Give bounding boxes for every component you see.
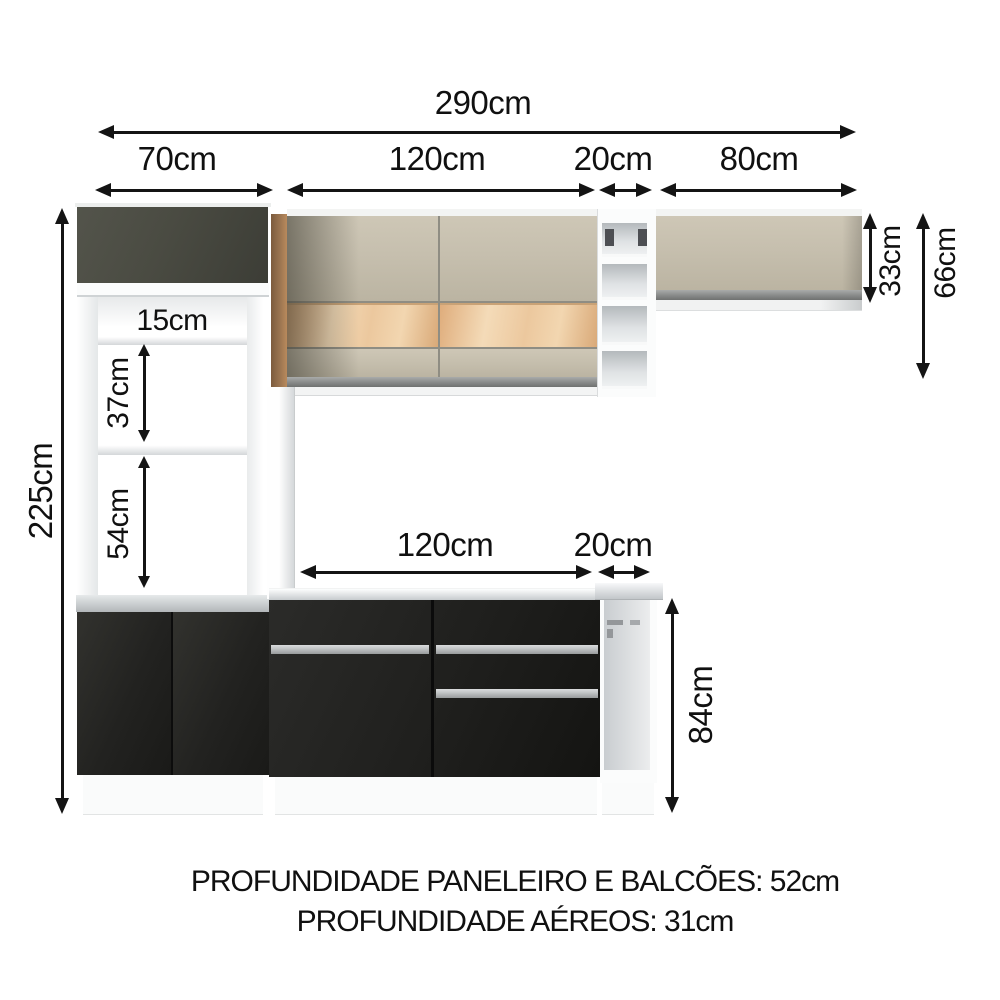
tall-cabinet-base-door-right	[173, 612, 269, 775]
upper-wall-cabinet-wood-side	[271, 214, 287, 388]
depth-note-cabinets: PROFUNDIDADE PANELEIRO E BALCÕES: 52cm	[15, 862, 1000, 902]
side-support-post	[267, 387, 295, 599]
upper-niche-hinge-right	[638, 229, 647, 246]
right-wall-cabinet-top-edge	[656, 209, 862, 216]
total-width-arrow	[98, 124, 856, 140]
counter-width-arrow	[300, 564, 592, 580]
depth-note-wall-units: PROFUNDIDADE AÉREOS: 31cm	[15, 902, 1000, 942]
base-counter-plinth	[275, 777, 597, 815]
base-counter-left-door-handle	[271, 645, 429, 654]
depth-notes: PROFUNDIDADE PANELEIRO E BALCÕES: 52cm P…	[15, 862, 1000, 942]
base-counter-door-seam	[431, 600, 434, 777]
base-niche-interior	[604, 600, 650, 770]
upper-wall-cabinet-door-right	[440, 216, 597, 301]
base-niche-hardware-1	[607, 620, 623, 625]
upper-niche-hinge-left	[605, 229, 614, 246]
tall-width-label: 70cm	[77, 141, 277, 177]
upper-wall-cabinet-bottom-edge	[287, 387, 597, 396]
tall-cabinet-base-door-left	[77, 612, 171, 775]
shelf-gap-bottom-label: 54cm	[101, 424, 137, 624]
tall-cabinet-plinth	[83, 775, 263, 815]
right-wall-cabinet-bottom-edge	[656, 300, 862, 311]
upper-cabinet-width-label: 120cm	[337, 141, 537, 177]
upper-niche-cell-4	[602, 351, 647, 389]
total-width-label: 290cm	[383, 85, 583, 121]
upper-section-height-label: 66cm	[928, 163, 964, 363]
upper-wall-cabinet-rail	[287, 377, 597, 387]
tall-width-arrow	[95, 182, 273, 198]
base-counter-right-door-handle	[436, 689, 598, 698]
base-niche-hardware-3	[630, 620, 640, 625]
base-counter-worktop	[269, 588, 600, 600]
tall-cabinet-base	[77, 612, 269, 775]
right-cabinet-width-arrow	[660, 182, 857, 198]
counter-height-arrow	[664, 598, 680, 813]
tall-cabinet-left-post	[77, 297, 98, 597]
upper-cabinet-width-arrow	[287, 182, 595, 198]
right-wall-cabinet-rail	[656, 290, 862, 300]
upper-wall-cabinet-lower-panel-right	[440, 349, 597, 377]
counter-niche-width-label: 20cm	[513, 527, 713, 563]
right-wall-cabinet-side-shade	[842, 216, 862, 290]
counter-height-label: 84cm	[683, 605, 719, 805]
shelf-gap-bottom-arrow	[137, 456, 151, 588]
base-niche-hardware-2	[607, 629, 613, 638]
upper-wall-cabinet-shadow	[287, 216, 359, 377]
right-wall-cabinet-door	[656, 216, 862, 290]
tall-cabinet-upper-door	[77, 207, 268, 283]
tall-height-arrow	[54, 208, 70, 814]
shelf-gap-middle-arrow	[137, 344, 151, 442]
counter-niche-width-arrow	[598, 564, 650, 580]
upper-wall-cabinet-glass-strip-right	[440, 303, 597, 347]
base-niche-plinth	[602, 783, 654, 815]
upper-wall-cabinet-body	[287, 216, 597, 387]
right-cabinet-height-label: 33cm	[873, 161, 909, 361]
upper-niche-cell-2	[602, 264, 647, 300]
base-counter-drawer-handle	[436, 645, 598, 654]
right-cabinet-width-label: 80cm	[659, 141, 859, 177]
kitchen-dimension-diagram: 290cm 70cm 120cm 20cm 80cm 225cm 15cm 37…	[0, 0, 1000, 1000]
upper-wall-cabinet-top-edge	[287, 209, 597, 216]
upper-niche-cell-3	[602, 306, 647, 345]
base-niche-worktop	[595, 583, 663, 600]
upper-niche-width-arrow	[599, 182, 652, 198]
